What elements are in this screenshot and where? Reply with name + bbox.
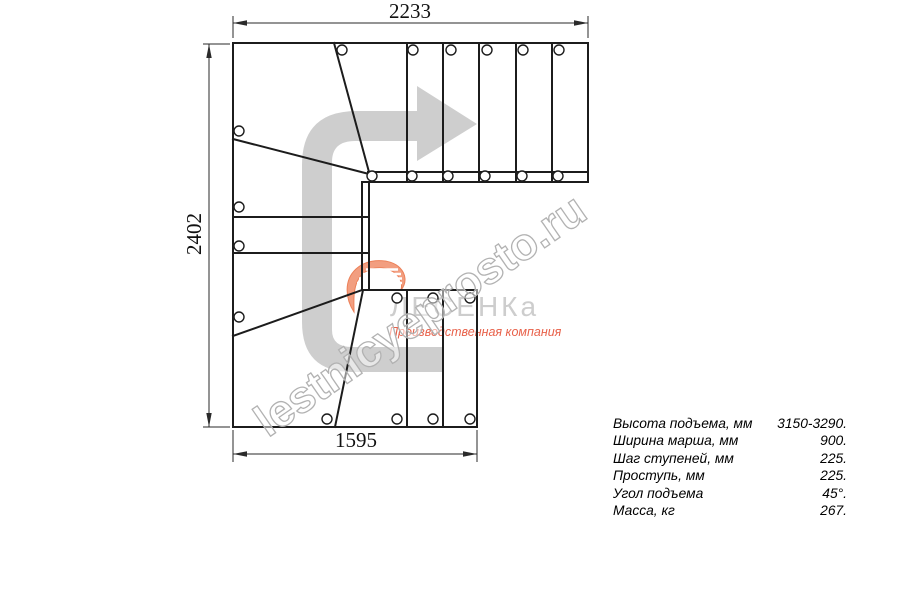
spec-row: Ширина марша, мм 900. — [613, 432, 847, 449]
spec-value: 3150-3290. — [777, 415, 847, 432]
dimension-left-label: 2402 — [182, 213, 206, 255]
spec-label: Проступь, мм — [613, 467, 705, 484]
spec-label: Шаг ступеней, мм — [613, 450, 734, 467]
spec-value: 900. — [820, 432, 847, 449]
spec-label: Масса, кг — [613, 502, 675, 519]
spec-label: Высота подъема, мм — [613, 415, 752, 432]
spec-row: Проступь, мм 225. — [613, 467, 847, 484]
spec-value: 225. — [820, 467, 847, 484]
spec-row: Высота подъема, мм 3150-3290. — [613, 415, 847, 432]
spec-value: 45°. — [822, 485, 847, 502]
spec-value: 267. — [820, 502, 847, 519]
spec-label: Ширина марша, мм — [613, 432, 738, 449]
spec-label: Угол подъема — [613, 485, 703, 502]
spec-row: Шаг ступеней, мм 225. — [613, 450, 847, 467]
watermark-text: lestnicyeprosto.ru — [245, 183, 595, 446]
staircase-plan-page: ЛЕСЕНКа Производственная компания — [0, 0, 900, 600]
spec-value: 225. — [820, 450, 847, 467]
dimension-bottom-label: 1595 — [335, 428, 377, 452]
dimension-top-label: 2233 — [389, 0, 431, 23]
spec-row: Угол подъема 45°. — [613, 485, 847, 502]
spec-table: Высота подъема, мм 3150-3290. Ширина мар… — [613, 415, 847, 519]
spec-row: Масса, кг 267. — [613, 502, 847, 519]
